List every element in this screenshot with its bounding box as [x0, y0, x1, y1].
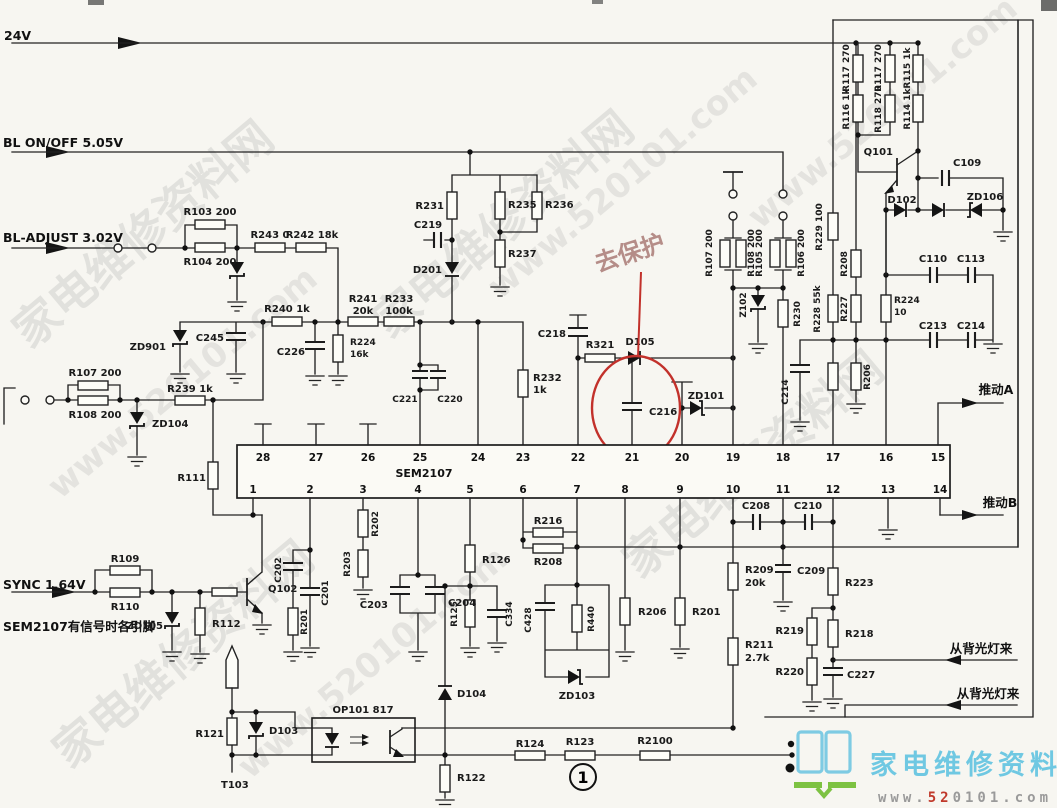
- diode-unlabeled-icon: [932, 203, 944, 217]
- cap-c214b: [968, 332, 975, 348]
- label-r110: R110: [111, 602, 140, 613]
- svg-text:21: 21: [625, 452, 640, 464]
- label-r109: R109: [111, 554, 140, 565]
- label-r241: R241: [349, 294, 378, 305]
- rail-blonoff-label: BL ON/OFF 5.05V: [3, 135, 123, 150]
- label-r208a: R208: [840, 251, 850, 277]
- led-icon: [325, 733, 339, 747]
- resistor-r229: [828, 213, 838, 240]
- label-c210: C210: [794, 501, 822, 512]
- site-logo: 家电维修资料网 www.520101.com: [786, 732, 1057, 806]
- label-r111: R111: [177, 473, 206, 484]
- label-c216: C216: [649, 407, 677, 418]
- label-c109: C109: [953, 158, 981, 169]
- resistor-r208b: [533, 544, 563, 553]
- label-r227: R227: [840, 296, 850, 322]
- resistor-r202: [358, 510, 368, 537]
- resistor-unlabeled-2: [828, 363, 838, 390]
- cap-c201: [300, 588, 320, 595]
- label-c218: C218: [538, 329, 566, 340]
- label-r115: R115 1k: [903, 46, 913, 88]
- svg-text:23: 23: [516, 452, 531, 464]
- schematic-page: 家电维修资料网 www.520101.com 家电维修资料网 www.52010…: [0, 0, 1057, 808]
- cap-c226: [305, 342, 325, 349]
- ic-body: [237, 445, 950, 498]
- svg-text:28: 28: [256, 452, 271, 464]
- handwritten-note: 去保护: [591, 229, 668, 278]
- label-r233-value: 100k: [385, 306, 413, 317]
- label-r224a-value: 16k: [350, 350, 370, 360]
- resistor-r105: [770, 240, 780, 267]
- label-r219: R219: [775, 626, 804, 637]
- resistor-r216: [533, 528, 563, 537]
- resistor-r118: [885, 95, 895, 122]
- resistor-r440: [572, 605, 582, 632]
- resistor-r239: [175, 396, 205, 405]
- resistor-r223: [828, 568, 838, 595]
- label-r233: R233: [385, 294, 414, 305]
- label-r112: R112: [212, 619, 241, 630]
- label-r116: R116 1k: [842, 87, 852, 129]
- label-r209-value: 20k: [745, 578, 766, 589]
- rail-sync-label: SYNC 1.64V: [3, 577, 86, 592]
- cap-c109: [942, 170, 949, 186]
- label-r107a: R107 200: [69, 368, 122, 379]
- resistor-r117b: [885, 55, 895, 82]
- svg-text:18: 18: [776, 452, 791, 464]
- svg-text:27: 27: [309, 452, 324, 464]
- label-c227: C227: [847, 670, 875, 681]
- label-r104: R104 200: [184, 257, 237, 268]
- label-c202: C202: [274, 557, 284, 582]
- label-c203: C203: [360, 600, 388, 611]
- label-c213: C213: [919, 321, 947, 332]
- resistor-r228: [828, 295, 838, 322]
- zener-zd901-icon: [173, 330, 187, 347]
- cap-c203: [390, 587, 410, 594]
- label-d102: D102: [887, 195, 916, 206]
- resistor-r224b: [881, 295, 891, 322]
- arrow-backlight-2: [945, 700, 961, 710]
- ic-sem2107: SEM2107 28 27 26 25 24 23 22 21 20 19 18…: [237, 424, 950, 498]
- ic-name: SEM2107: [396, 467, 453, 480]
- cap-c220: [430, 371, 446, 378]
- label-r228: R228 55k: [813, 284, 823, 332]
- label-r125: R125: [450, 601, 460, 627]
- svg-text:24: 24: [471, 452, 486, 464]
- label-push-b: 推动B: [983, 495, 1018, 510]
- label-r224a: R224: [350, 338, 376, 348]
- label-r121: R121: [195, 729, 224, 740]
- label-r216: R216: [534, 516, 563, 527]
- label-d103: D103: [269, 726, 298, 737]
- label-r223: R223: [845, 578, 874, 589]
- cap-c428: [535, 603, 555, 610]
- label-r218: R218: [845, 629, 874, 640]
- label-r231: R231: [415, 201, 444, 212]
- page-number-marker: 1: [570, 764, 596, 790]
- resistor-r232: [518, 370, 528, 397]
- resistor-r321: [585, 354, 615, 362]
- resistor-r122: [440, 765, 450, 792]
- cap-c216: [622, 403, 642, 410]
- label-r240: R240 1k: [264, 304, 310, 315]
- arrow-push-a: [962, 398, 978, 408]
- label-r440: R440: [587, 606, 597, 632]
- label-r206b: R206: [638, 607, 667, 618]
- zener-z102-icon: [751, 295, 765, 312]
- svg-text:19: 19: [726, 452, 741, 464]
- label-op101: OP101 817: [332, 705, 393, 716]
- resistor-r240: [272, 317, 302, 326]
- svg-text:10: 10: [726, 484, 741, 496]
- svg-text:2: 2: [306, 484, 313, 496]
- resistor-r108b: [736, 240, 746, 267]
- scan-marks: [88, 0, 1057, 11]
- label-zd101: ZD101: [688, 391, 724, 402]
- label-zd103: ZD103: [559, 691, 595, 702]
- label-r117b: R117 270: [874, 44, 884, 92]
- resistor-r201a: [288, 608, 298, 635]
- cap-c218: [568, 328, 588, 336]
- resistor-r104: [195, 243, 225, 252]
- label-r114: R114 1k: [903, 87, 913, 129]
- label-r203: R203: [343, 551, 353, 577]
- label-r230: R230: [793, 301, 803, 327]
- svg-text:8: 8: [621, 484, 628, 496]
- logo-url: www.520101.com: [878, 790, 1052, 806]
- cap-c214a: [790, 365, 810, 372]
- label-c428: C428: [524, 607, 534, 632]
- arrow-push-b: [962, 510, 978, 520]
- resistor-r107b: [720, 240, 730, 267]
- label-c220: C220: [437, 395, 462, 405]
- label-c113: C113: [957, 254, 985, 265]
- label-zd106: ZD106: [967, 192, 1003, 203]
- label-zd104: ZD104: [152, 419, 188, 430]
- label-d201: D201: [413, 265, 442, 276]
- svg-text:26: 26: [361, 452, 376, 464]
- svg-text:3: 3: [359, 484, 366, 496]
- zener-zd106-icon: [967, 203, 982, 217]
- resistor-r124: [515, 751, 545, 760]
- resistor-r206b: [620, 598, 630, 625]
- resistor-r231: [447, 192, 457, 219]
- svg-text:16: 16: [879, 452, 894, 464]
- label-r208b: R208: [534, 557, 563, 568]
- svg-text:25: 25: [413, 452, 428, 464]
- label-r220: R220: [775, 667, 804, 678]
- resistor-r209: [728, 563, 738, 590]
- label-r242: R242 18k: [286, 230, 339, 241]
- label-push-a: 推动A: [979, 382, 1014, 397]
- label-r321: R321: [586, 340, 615, 351]
- resistor-r211: [728, 638, 738, 665]
- label-r232-value: 1k: [533, 385, 547, 396]
- resistor-r107a: [78, 381, 108, 390]
- cap-c113: [968, 267, 975, 283]
- svg-text:20: 20: [675, 452, 690, 464]
- resistor-r110: [110, 588, 140, 597]
- cap-c213: [930, 332, 937, 348]
- label-r235: R235: [508, 200, 537, 211]
- resistor-r117a: [853, 55, 863, 82]
- label-c245: C245: [196, 333, 224, 344]
- resistor-r206a: [851, 363, 861, 390]
- logo-dot: [786, 764, 795, 773]
- label-c334: C334: [505, 601, 515, 626]
- resistor-r219: [807, 618, 817, 645]
- label-d104: D104: [457, 689, 486, 700]
- zener-zd103-icon: [568, 670, 583, 684]
- resistor-r111: [208, 462, 218, 489]
- label-c214a: C214: [781, 379, 791, 404]
- label-r118: R118 270: [874, 85, 884, 133]
- light-arrows: [350, 737, 362, 743]
- resistor-r235: [495, 192, 505, 219]
- svg-text:12: 12: [826, 484, 841, 496]
- resistor-r208a: [851, 250, 861, 277]
- label-c219: C219: [414, 220, 442, 231]
- watermarks: 家电维修资料网 www.520101.com 家电维修资料网 www.52010…: [2, 0, 1025, 787]
- label-r117a: R117 270: [842, 44, 852, 92]
- label-r202: R202: [371, 511, 381, 537]
- resistor-r218: [828, 620, 838, 647]
- svg-text:5: 5: [466, 484, 473, 496]
- resistor-r126: [465, 545, 475, 572]
- resistor-r106: [786, 240, 796, 267]
- book-icon: [798, 732, 822, 772]
- resistor-r108a: [78, 396, 108, 405]
- resistor-r112: [195, 608, 205, 635]
- label-r241-value: 20k: [353, 306, 374, 317]
- svg-text:9: 9: [676, 484, 683, 496]
- arrow-backlight-1: [945, 655, 961, 665]
- cap-c221: [412, 371, 428, 378]
- label-d105: D105: [625, 337, 654, 348]
- label-r229: R229 100: [815, 203, 825, 251]
- label-r232: R232: [533, 373, 562, 384]
- cap-c110: [930, 267, 937, 283]
- resistor-r224a: [333, 335, 343, 362]
- label-r237: R237: [508, 249, 537, 260]
- svg-text:7: 7: [573, 484, 580, 496]
- label-q101: Q101: [864, 147, 893, 158]
- opto-network: R121 D103 T103 OP101 817 R122 R124 R123 …: [195, 646, 794, 808]
- svg-text:4: 4: [414, 484, 421, 496]
- label-c208: C208: [742, 501, 770, 512]
- logo-site-name: 家电维修资料网: [870, 749, 1057, 781]
- resistor-r203: [358, 550, 368, 577]
- label-r126: R126: [482, 555, 511, 566]
- svg-text:22: 22: [571, 452, 586, 464]
- resistor-r220: [807, 658, 817, 685]
- label-r107b: R107 200: [705, 229, 715, 277]
- label-r211-value: 2.7k: [745, 653, 770, 664]
- svg-text:11: 11: [776, 484, 791, 496]
- label-r243: R243 0: [250, 230, 289, 241]
- label-r201a: R201: [300, 609, 310, 635]
- svg-text:15: 15: [931, 452, 946, 464]
- svg-text:6: 6: [519, 484, 526, 496]
- label-c214b: C214: [957, 321, 985, 332]
- label-r224b: R224: [894, 296, 920, 306]
- zener-zd101-icon: [690, 401, 705, 415]
- label-r211: R211: [745, 640, 774, 651]
- label-r201b: R201: [692, 607, 721, 618]
- resistor-r121: [227, 718, 237, 745]
- cap-c209: [775, 565, 791, 572]
- plug-symbol: [226, 646, 238, 688]
- cap-c208: [753, 514, 760, 530]
- label-r103: R103 200: [184, 207, 237, 218]
- label-backlight-1: 从背光灯来: [950, 641, 1013, 656]
- resistor-r227: [851, 295, 861, 322]
- resistor-r123: [565, 751, 595, 760]
- rail-bladjust-label: BL-ADJUST 3.02V: [3, 230, 123, 245]
- resistor-unlabeled-1: [212, 588, 237, 596]
- resistor-r230: [778, 300, 788, 327]
- label-r123: R123: [566, 737, 595, 748]
- resistor-r109: [110, 566, 140, 575]
- svg-text:1: 1: [249, 484, 256, 496]
- resistor-r201b: [675, 598, 685, 625]
- label-r108a: R108 200: [69, 410, 122, 421]
- book-base-icon: [794, 782, 856, 788]
- label-c221: C221: [392, 395, 417, 405]
- resistor-r115: [913, 55, 923, 82]
- label-z102: Z102: [739, 292, 749, 317]
- zener-zd105-icon: [165, 612, 179, 629]
- outputs: 推动A 推动B 从背光灯来 从背光灯来: [833, 382, 1020, 717]
- schematic-svg: 家电维修资料网 www.520101.com 家电维修资料网 www.52010…: [0, 0, 1057, 808]
- label-r236: R236: [545, 200, 574, 211]
- input-rails: 24V BL ON/OFF 5.05V BL-ADJUST 3.02V SYNC…: [3, 28, 918, 634]
- label-zd901: ZD901: [130, 342, 166, 353]
- resistor-r103: [195, 220, 225, 229]
- rail-24v-label: 24V: [4, 28, 31, 43]
- resistor-r114: [913, 95, 923, 122]
- resistor-r116: [853, 95, 863, 122]
- label-r224b-value: 10: [894, 308, 907, 318]
- page-number: 1: [577, 768, 588, 787]
- resistor-r237: [495, 240, 505, 267]
- label-r122: R122: [457, 773, 486, 784]
- svg-text:13: 13: [881, 484, 896, 496]
- svg-text:17: 17: [826, 452, 841, 464]
- cap-c227: [823, 668, 843, 675]
- label-r105: R105 200: [755, 229, 765, 277]
- label-r209: R209: [745, 565, 774, 576]
- label-r239: R239 1k: [167, 384, 213, 395]
- label-c201: C201: [321, 580, 331, 605]
- label-zd105: ZD105: [127, 621, 163, 632]
- label-r106: R106 200: [797, 229, 807, 277]
- resistor-r2100: [640, 751, 670, 760]
- label-r124: R124: [516, 739, 545, 750]
- label-r206a: R206: [863, 364, 873, 390]
- label-c110: C110: [919, 254, 947, 265]
- label-t103: T103: [221, 780, 249, 791]
- diode-d104-icon: [438, 686, 452, 700]
- cap-c210: [805, 514, 812, 530]
- cap-c334: [487, 610, 507, 617]
- resistor-r241: [348, 317, 378, 326]
- label-backlight-2: 从背光灯来: [957, 686, 1020, 701]
- resistor-r243: [255, 243, 285, 252]
- svg-text:14: 14: [933, 484, 948, 496]
- resistor-r233: [384, 317, 414, 326]
- resistor-r242: [296, 243, 326, 252]
- label-c209: C209: [797, 566, 825, 577]
- label-c226: C226: [277, 347, 305, 358]
- label-r2100: R2100: [637, 736, 673, 747]
